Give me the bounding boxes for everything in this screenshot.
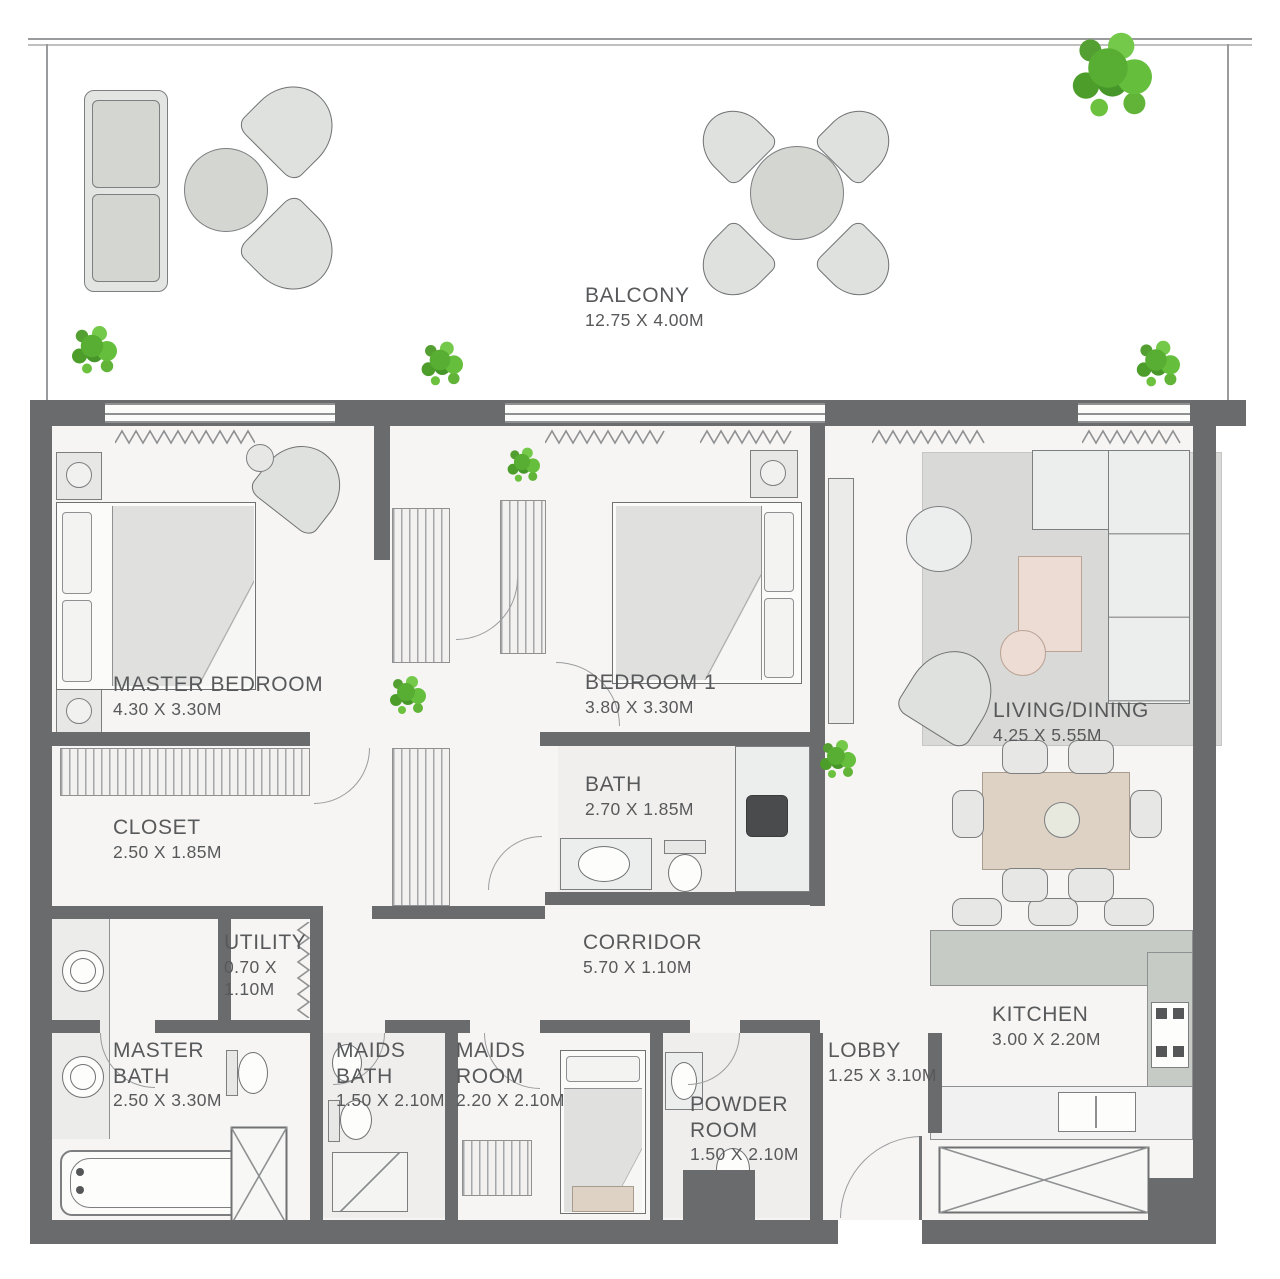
wall-segment — [52, 732, 310, 746]
sofa — [1108, 450, 1190, 704]
pillow — [764, 598, 794, 678]
toilet-tank — [664, 840, 706, 854]
wall-segment — [372, 906, 545, 919]
tree-icon — [67, 321, 117, 371]
void-box — [938, 1146, 1150, 1214]
balcony-edge-right — [1227, 44, 1229, 402]
entry-door-leaf — [919, 1136, 922, 1220]
wall-segment — [545, 892, 823, 905]
lamp-icon — [66, 698, 92, 724]
round-side-table — [906, 506, 972, 572]
room-dims: 0.70 X 1.10M — [224, 956, 310, 1001]
room-label-master-bedroom: MASTER BEDROOM 4.30 X 3.30M — [113, 672, 323, 720]
faucet-icon — [76, 1168, 84, 1176]
room-label-kitchen: KITCHEN 3.00 X 2.20M — [992, 1002, 1101, 1050]
sink-icon — [578, 846, 630, 882]
lamp-icon — [760, 460, 786, 486]
room-dims: 5.70 X 1.10M — [583, 956, 702, 978]
sink-divider — [1095, 1096, 1097, 1128]
shower — [332, 1152, 408, 1212]
wardrobe — [500, 500, 546, 654]
side-table — [246, 444, 274, 472]
room-name: LIVING/DINING — [993, 698, 1149, 724]
room-label-bedroom-1: BEDROOM 1 3.80 X 3.30M — [585, 670, 716, 718]
pillow — [764, 512, 794, 592]
room-dims: 1.50 X 2.10M — [690, 1143, 826, 1165]
room-label-maids-room: MAIDS ROOM 2.20 X 2.10M — [456, 1038, 572, 1112]
window — [105, 403, 335, 423]
room-name: BATH — [585, 772, 694, 798]
curtain-zigzag — [1082, 428, 1182, 446]
balcony-chair — [813, 219, 904, 310]
room-name: MASTER BATH — [113, 1038, 237, 1089]
tree-icon — [417, 337, 463, 383]
burner-icon — [1173, 1008, 1184, 1019]
room-name: UTILITY — [224, 930, 310, 956]
tree-icon — [1064, 24, 1152, 112]
wardrobe — [392, 508, 450, 663]
curtain-zigzag — [700, 428, 792, 446]
wardrobe — [392, 748, 450, 906]
room-dims: 2.50 X 3.30M — [113, 1089, 237, 1111]
maids-shelf — [462, 1140, 532, 1196]
room-dims: 1.50 X 2.10M — [336, 1089, 448, 1111]
balcony-sofa-cushion — [92, 100, 160, 188]
pouf — [1000, 630, 1046, 676]
room-name: MASTER BEDROOM — [113, 672, 323, 698]
room-dims: 3.00 X 2.20M — [992, 1028, 1101, 1050]
tree-icon — [386, 672, 426, 712]
window — [1078, 403, 1190, 423]
wall-segment — [310, 906, 323, 1220]
wall-segment — [683, 1170, 755, 1220]
wall-segment — [810, 426, 825, 906]
bar-stool — [952, 898, 1002, 926]
window — [505, 403, 825, 423]
room-dims: 2.20 X 2.10M — [456, 1089, 572, 1111]
room-name: MAIDS ROOM — [456, 1038, 572, 1089]
room-name: POWDER ROOM — [690, 1092, 826, 1143]
faucet-icon — [76, 1186, 84, 1194]
curtain-zigzag — [115, 428, 255, 446]
wall-segment — [155, 1020, 310, 1033]
room-name: CORRIDOR — [583, 930, 702, 956]
room-label-maids-bath: MAIDS BATH 1.50 X 2.10M — [336, 1038, 448, 1112]
room-name: MAIDS BATH — [336, 1038, 448, 1089]
kitchen-sink — [1058, 1092, 1136, 1132]
room-label-lobby: LOBBY 1.25 X 3.10M — [828, 1038, 937, 1086]
sink-basin — [70, 958, 96, 984]
burner-icon — [1173, 1046, 1184, 1057]
room-dims: 1.25 X 3.10M — [828, 1064, 937, 1086]
room-label-bath: BATH 2.70 X 1.85M — [585, 772, 694, 820]
tree-icon — [1132, 336, 1180, 384]
room-name: KITCHEN — [992, 1002, 1101, 1028]
room-dims: 4.25 X 5.55M — [993, 724, 1149, 746]
vanity-stool — [746, 795, 788, 837]
wall-segment — [1148, 1178, 1216, 1242]
curtain-zigzag — [545, 428, 665, 446]
tree-icon — [816, 736, 856, 776]
blanket — [616, 506, 762, 680]
room-name: BALCONY — [585, 283, 704, 309]
balcony-edge-left — [46, 44, 48, 402]
room-label-closet: CLOSET 2.50 X 1.85M — [113, 815, 222, 863]
room-dims: 2.50 X 1.85M — [113, 841, 222, 863]
wall-segment — [30, 400, 52, 1244]
dining-chair — [952, 790, 984, 838]
tree-icon — [504, 444, 540, 480]
bar-stool — [1104, 898, 1154, 926]
room-name: CLOSET — [113, 815, 222, 841]
floor-plan: BALCONY 12.75 X 4.00M MASTER BEDROOM 4.3… — [0, 0, 1280, 1279]
wall-segment — [52, 906, 318, 919]
bench — [572, 1186, 634, 1212]
room-label-powder-room: POWDER ROOM 1.50 X 2.10M — [690, 1092, 826, 1166]
curtain-zigzag — [872, 428, 990, 446]
room-label-living-dining: LIVING/DINING 4.25 X 5.55M — [993, 698, 1149, 746]
room-label-master-bath: MASTER BATH 2.50 X 3.30M — [113, 1038, 237, 1112]
pillow — [566, 1056, 640, 1082]
shaft-box — [230, 1126, 288, 1226]
room-dims: 2.70 X 1.85M — [585, 798, 694, 820]
sink-basin — [70, 1064, 96, 1090]
tv-console — [828, 478, 854, 724]
room-label-utility: UTILITY 0.70 X 1.10M — [224, 930, 310, 1000]
dining-chair — [1130, 790, 1162, 838]
bar-stool — [1028, 898, 1078, 926]
room-label-balcony: BALCONY 12.75 X 4.00M — [585, 283, 704, 331]
lamp-icon — [66, 462, 92, 488]
burner-icon — [1156, 1008, 1167, 1019]
room-dims: 4.30 X 3.30M — [113, 698, 323, 720]
wall-segment — [650, 1033, 663, 1220]
pillow — [62, 600, 92, 682]
dining-chair — [1068, 868, 1114, 902]
centerpiece — [1044, 802, 1080, 838]
blanket — [112, 506, 254, 686]
dining-chair — [1002, 868, 1048, 902]
burner-icon — [1156, 1046, 1167, 1057]
room-dims: 3.80 X 3.30M — [585, 696, 716, 718]
toilet-icon — [668, 854, 702, 892]
pillow — [62, 512, 92, 594]
wall-segment — [30, 1220, 838, 1244]
closet-wardrobe — [60, 748, 310, 796]
room-name: BEDROOM 1 — [585, 670, 716, 696]
room-dims: 12.75 X 4.00M — [585, 309, 704, 331]
wall-segment — [385, 1020, 470, 1033]
balcony-coffee-table — [184, 148, 268, 232]
wall-segment — [1193, 400, 1216, 1244]
wall-segment — [374, 426, 390, 560]
room-name: LOBBY — [828, 1038, 937, 1064]
balcony-sofa-cushion — [92, 194, 160, 282]
wall-segment — [740, 1020, 820, 1033]
toilet-icon — [238, 1052, 268, 1094]
wall-segment — [540, 1020, 690, 1033]
wall-segment — [540, 732, 825, 746]
wall-segment — [52, 1020, 100, 1033]
room-label-corridor: CORRIDOR 5.70 X 1.10M — [583, 930, 702, 978]
